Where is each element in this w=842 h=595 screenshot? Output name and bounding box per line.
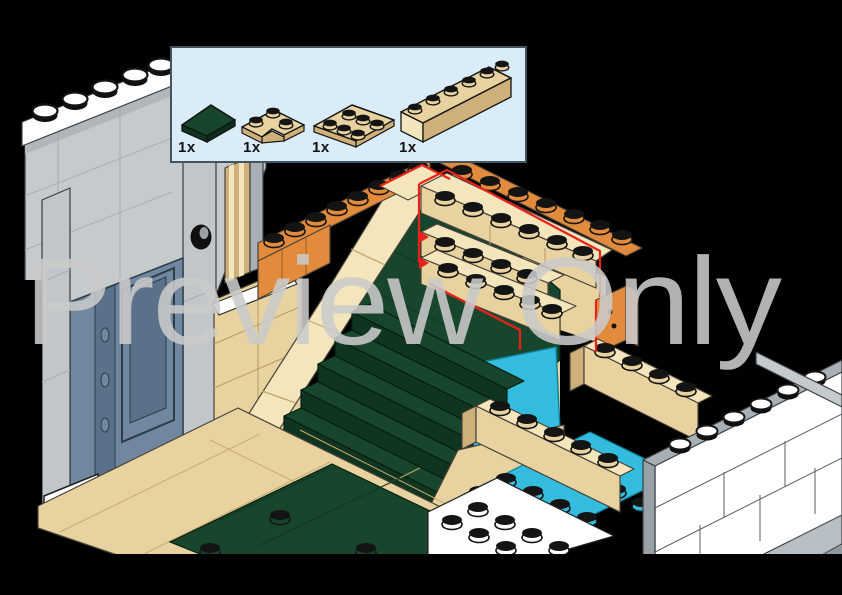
part-corner-plate-tan: [242, 108, 304, 143]
parts-illustrations: [172, 48, 525, 161]
part-count-label: 1x: [178, 140, 196, 155]
bottom-crop: [0, 554, 842, 595]
part-count-label: 1x: [243, 140, 261, 155]
part-brick-1x6-tan: [401, 61, 511, 142]
lego-instruction-page: 1x 1x 1x 1x Preview Only: [0, 0, 842, 595]
porthole: [191, 225, 212, 250]
part-wedge-plate-dark-green: [182, 105, 235, 142]
part-count-label: 1x: [312, 140, 330, 155]
parts-callout-panel: 1x 1x 1x 1x: [170, 46, 527, 163]
door-pillar-left: [42, 188, 70, 515]
part-count-label: 1x: [399, 140, 417, 155]
striped-wood-column: [225, 152, 263, 283]
